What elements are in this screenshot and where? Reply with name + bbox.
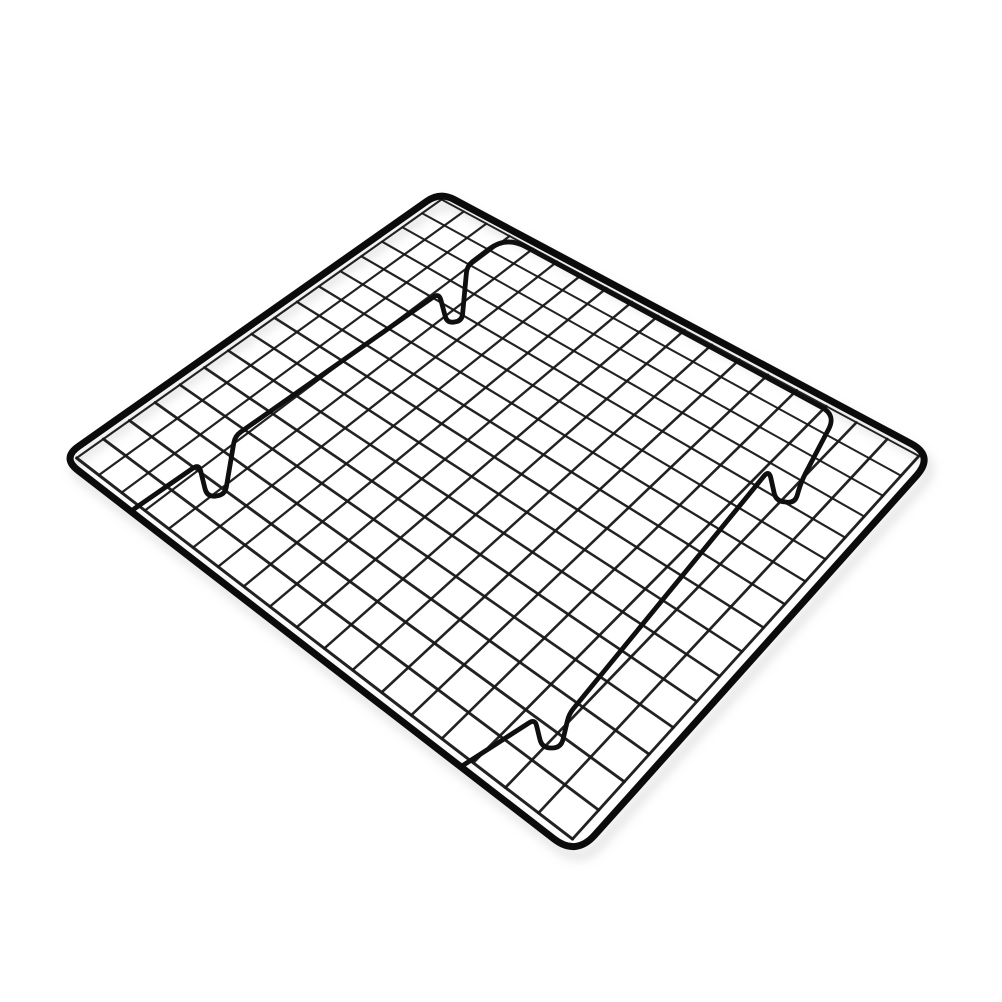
mesh-wire xyxy=(169,249,533,529)
mesh-wire xyxy=(340,271,825,559)
mesh-wire xyxy=(77,458,573,839)
product-figure: Black non-stick steel wire cooling rack … xyxy=(0,0,1002,1002)
mesh-wire xyxy=(270,302,632,607)
mesh-wire xyxy=(122,224,487,493)
mesh-wire xyxy=(228,351,720,677)
product-photo: Black non-stick steel wire cooling rack … xyxy=(0,0,1002,1002)
outer-frame xyxy=(70,196,924,846)
mesh-wire xyxy=(442,200,919,457)
mesh-wire xyxy=(319,286,806,581)
cooling-rack-image xyxy=(0,0,1002,1002)
